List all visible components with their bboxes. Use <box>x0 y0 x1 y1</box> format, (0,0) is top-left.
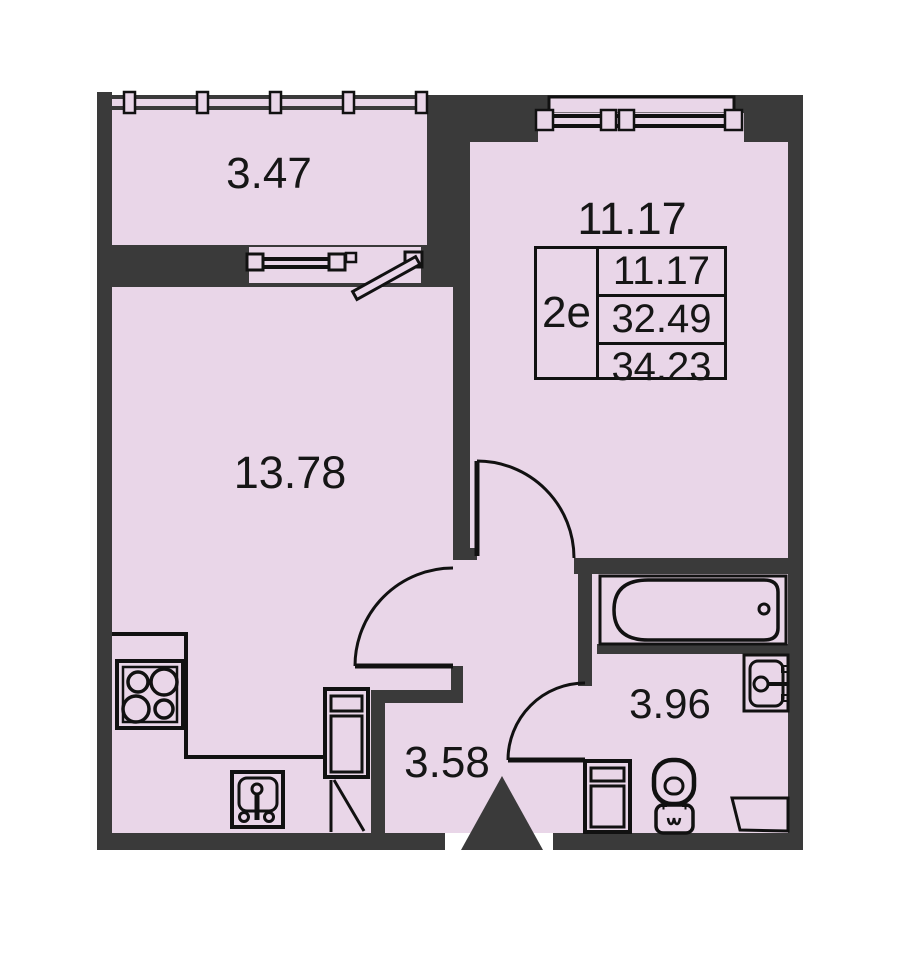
bathroom-door-icon <box>508 683 585 760</box>
area-no-balcony-value: 32.49 <box>599 297 724 345</box>
kitchen-sink-icon <box>232 772 283 827</box>
plan-symbols <box>0 0 900 953</box>
bathroom-area-label: 3.96 <box>629 680 711 728</box>
kitchen-counter-line <box>112 634 327 757</box>
fridge-icon <box>325 689 368 777</box>
balcony-door-window <box>247 247 422 299</box>
floor-plan: 3.47 11.17 13.78 3.58 3.96 2е 11.17 32.4… <box>0 0 900 953</box>
living-door-icon <box>355 568 453 666</box>
total-area-value: 34.23 <box>599 345 724 390</box>
living-area-value: 11.17 <box>599 249 724 297</box>
apartment-type-label: 2е <box>537 249 599 377</box>
room-door-icon <box>477 461 574 558</box>
window-bracket-icon <box>346 253 356 262</box>
bathtub-icon <box>600 576 786 644</box>
apartment-info-table: 2е 11.17 32.49 34.23 <box>534 246 727 380</box>
room-area-label: 11.17 <box>577 193 686 245</box>
stove-icon <box>117 661 183 728</box>
duct-panel <box>732 798 788 831</box>
bath-sink-icon <box>744 655 788 711</box>
apartment-areas: 11.17 32.49 34.23 <box>599 249 724 377</box>
toilet-icon <box>654 760 694 833</box>
hallway-area-label: 3.58 <box>404 738 490 788</box>
cabinet-open-door-icon <box>331 780 364 832</box>
living-kitchen-area-label: 13.78 <box>234 447 347 499</box>
balcony-window-icon <box>98 92 430 113</box>
washing-machine-icon <box>585 761 630 832</box>
balcony-area-label: 3.47 <box>226 149 312 199</box>
room-window-icon <box>536 97 744 142</box>
